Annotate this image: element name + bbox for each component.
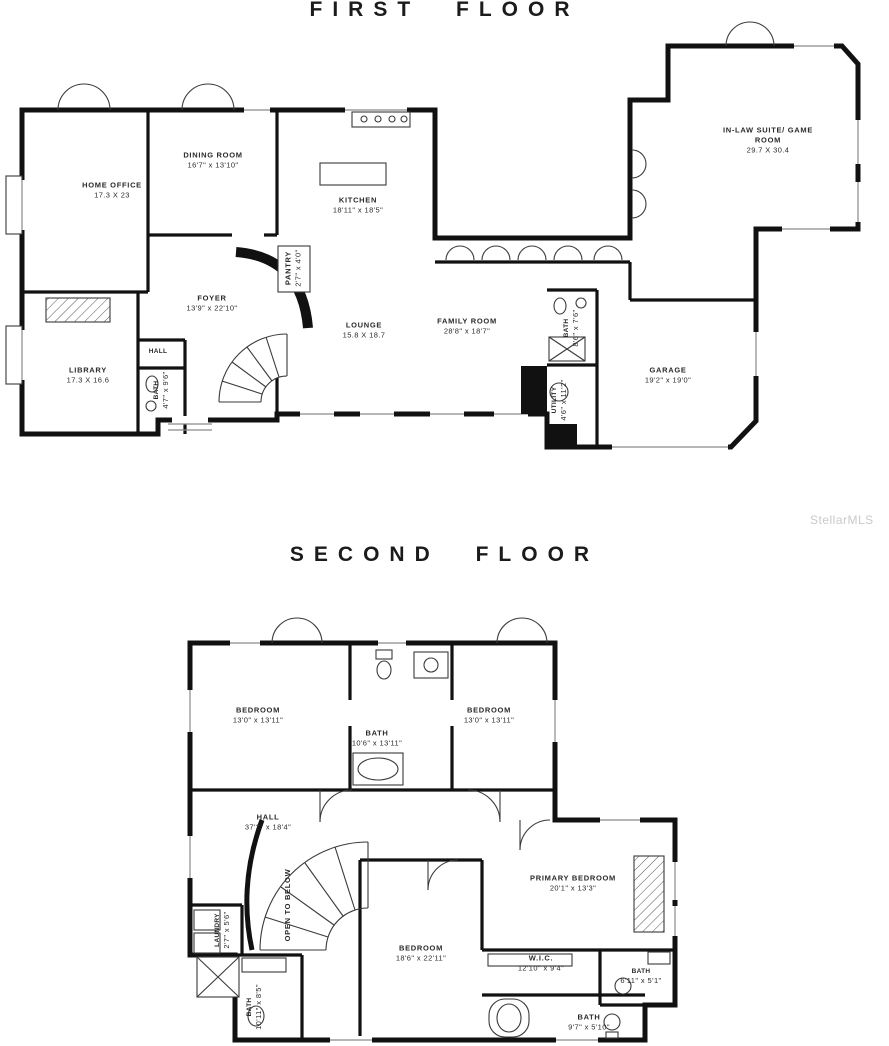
room-name: BATH	[246, 984, 254, 1030]
room-name: UTILITY	[551, 379, 559, 420]
room-name: W.I.C.	[518, 953, 564, 963]
room-name: BATH	[620, 968, 661, 976]
room-name: LOUNGE	[343, 320, 386, 330]
room-label-hall-f2-3: HALL37'2" x 18'4"	[245, 812, 291, 832]
room-label-bedroom-f2-0: BEDROOM13'0" x 13'11"	[233, 705, 283, 725]
room-name: BEDROOM	[396, 943, 446, 953]
room-label-bedroom-f2-2: BEDROOM13'0" x 13'11"	[464, 705, 514, 725]
room-name: BATH	[568, 1012, 610, 1022]
room-label-dining-room-f1-1: DINING ROOM16'7" x 13'10"	[183, 150, 242, 170]
room-name: HALL	[149, 348, 168, 356]
room-dims: 12'10" x 9'4"	[518, 963, 564, 973]
room-label-garage-f1-13: GARAGE19'2" x 19'0"	[645, 365, 691, 385]
room-name: DINING ROOM	[183, 150, 242, 160]
room-name: LAUNDRY	[214, 911, 222, 948]
room-name: FOYER	[187, 293, 238, 303]
room-dims: 18'11" x 18'5"	[333, 205, 383, 215]
room-label-family-room-f1-7: FAMILY ROOM28'8" x 18'7"	[437, 316, 497, 336]
room-label-library-f1-8: LIBRARY17.3 X 16.6	[67, 365, 110, 385]
room-label-open-to-below-f2-4: OPEN TO BELOW	[283, 869, 293, 942]
room-label-laundry-f2-5: LAUNDRY2'7" x 5'6"	[214, 911, 232, 948]
room-name: HOME OFFICE	[82, 180, 142, 190]
second-floor-walls	[190, 643, 675, 1040]
room-dims: 16'7" x 13'10"	[183, 160, 242, 170]
room-label-kitchen-f1-2: KITCHEN18'11" x 18'5"	[333, 195, 383, 215]
room-label-w-i-c-f2-8: W.I.C.12'10" x 9'4"	[518, 953, 564, 973]
room-name: BATH	[563, 309, 571, 346]
room-name: BATH	[352, 728, 402, 738]
room-label-bedroom-f2-6: BEDROOM18'6" x 22'11"	[396, 943, 446, 963]
room-label-bath-f1-11: BATH8'6" x 7'6"	[563, 309, 581, 346]
room-dims: 15.8 X 18.7	[343, 330, 386, 340]
room-dims: 10'6" x 13'11"	[352, 738, 402, 748]
first-floor-title: FIRST FLOOR	[0, 0, 889, 22]
room-name: HALL	[245, 812, 291, 822]
first-floor-walls	[6, 46, 858, 447]
room-label-bath-f2-9: BATH6'11" x 5'1"	[620, 968, 661, 986]
room-name: OPEN TO BELOW	[283, 869, 293, 942]
room-name: BATH	[153, 371, 161, 408]
room-dims: 37'2" x 18'4"	[245, 822, 291, 832]
room-dims: 4'6" x 11'2"	[559, 379, 569, 420]
room-dims: 2'7" x 5'6"	[222, 911, 232, 948]
room-label-bath-f1-10: BATH4'7" x 9'6"	[153, 371, 171, 408]
room-name: BEDROOM	[464, 705, 514, 715]
room-label-hall-f1-9: HALL	[149, 348, 168, 356]
room-name: BEDROOM	[233, 705, 283, 715]
room-name: IN-LAW SUITE/ GAME ROOM	[723, 125, 813, 145]
floor-plan-drawing	[0, 0, 889, 1046]
room-name: PANTRY	[283, 249, 293, 286]
watermark: StellarMLS	[810, 513, 874, 527]
room-dims: 9'7" x 5'10"	[568, 1022, 610, 1032]
room-dims: 18'6" x 22'11"	[396, 953, 446, 963]
room-dims: 13'0" x 13'11"	[464, 715, 514, 725]
room-label-foyer-f1-4: FOYER13'9" x 22'10"	[187, 293, 238, 313]
room-dims: 19'2" x 19'0"	[645, 375, 691, 385]
room-label-lounge-f1-6: LOUNGE15.8 X 18.7	[343, 320, 386, 340]
room-name: PRIMARY BEDROOM	[530, 873, 616, 883]
room-label-bath-f2-11: BATH10'11" x 8'5"	[246, 984, 264, 1030]
room-label-bath-f2-1: BATH10'6" x 13'11"	[352, 728, 402, 748]
room-dims: 13'0" x 13'11"	[233, 715, 283, 725]
room-dims: 28'8" x 18'7"	[437, 326, 497, 336]
room-dims: 29.7 X 30.4	[723, 145, 813, 155]
floor-plan-canvas: FIRST FLOOR SECOND FLOOR HOME OFFICE17.3…	[0, 0, 889, 1046]
room-dims: 4'7" x 9'6"	[161, 371, 171, 408]
room-dims: 10'11" x 8'5"	[254, 984, 264, 1030]
room-name: GARAGE	[645, 365, 691, 375]
room-label-utility-f1-12: UTILITY4'6" x 11'2"	[551, 379, 569, 420]
room-label-in-law-suite-game-room-f1-3: IN-LAW SUITE/ GAME ROOM29.7 X 30.4	[723, 125, 813, 154]
room-label-bath-f2-10: BATH9'7" x 5'10"	[568, 1012, 610, 1032]
second-floor-title: SECOND FLOOR	[0, 543, 889, 567]
room-name: FAMILY ROOM	[437, 316, 497, 326]
room-label-home-office-f1-0: HOME OFFICE17.3 X 23	[82, 180, 142, 200]
room-dims: 6'11" x 5'1"	[620, 976, 661, 986]
room-dims: 2'7" x 4'0"	[293, 249, 303, 286]
room-dims: 20'1" x 13'3"	[530, 883, 616, 893]
room-name: LIBRARY	[67, 365, 110, 375]
room-name: KITCHEN	[333, 195, 383, 205]
room-dims: 17.3 X 16.6	[67, 375, 110, 385]
room-dims: 17.3 X 23	[82, 190, 142, 200]
room-dims: 13'9" x 22'10"	[187, 303, 238, 313]
room-label-primary-bedroom-f2-7: PRIMARY BEDROOM20'1" x 13'3"	[530, 873, 616, 893]
room-label-pantry-f1-5: PANTRY2'7" x 4'0"	[283, 249, 303, 286]
room-dims: 8'6" x 7'6"	[571, 309, 581, 346]
